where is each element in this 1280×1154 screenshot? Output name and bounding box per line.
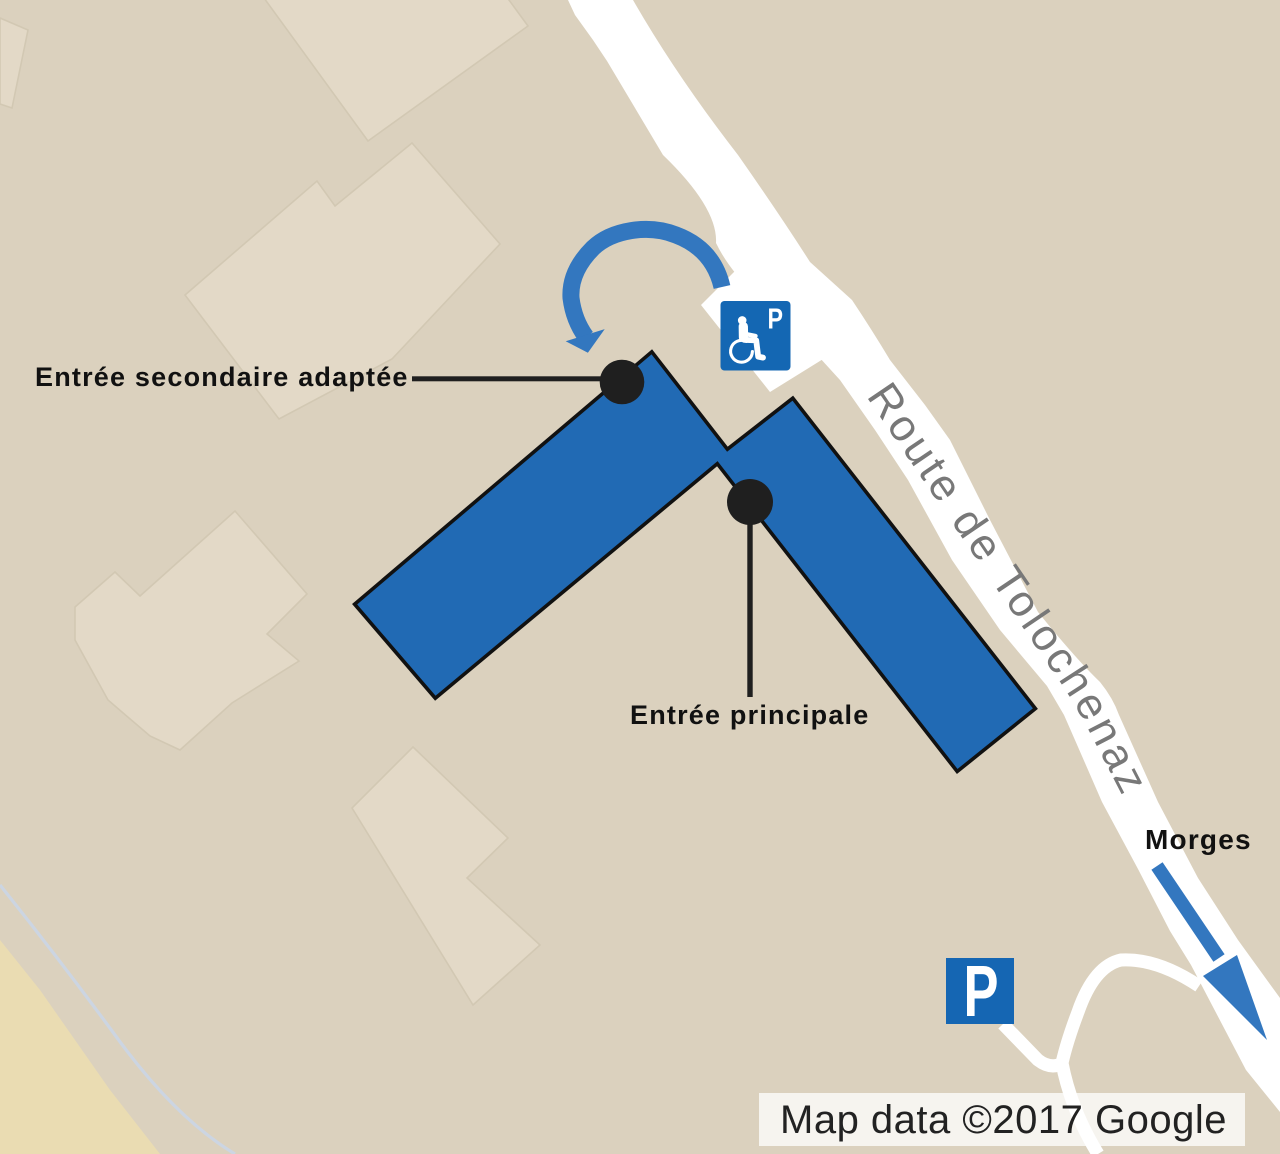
- svg-text:Map data ©2017 Google: Map data ©2017 Google: [780, 1098, 1227, 1142]
- svg-text:Entrée principale: Entrée principale: [630, 700, 869, 730]
- svg-text:P: P: [768, 304, 784, 336]
- svg-text:Morges: Morges: [1145, 824, 1252, 855]
- svg-text:Entrée secondaire adaptée: Entrée secondaire adaptée: [35, 362, 409, 392]
- svg-text:P: P: [964, 952, 999, 1032]
